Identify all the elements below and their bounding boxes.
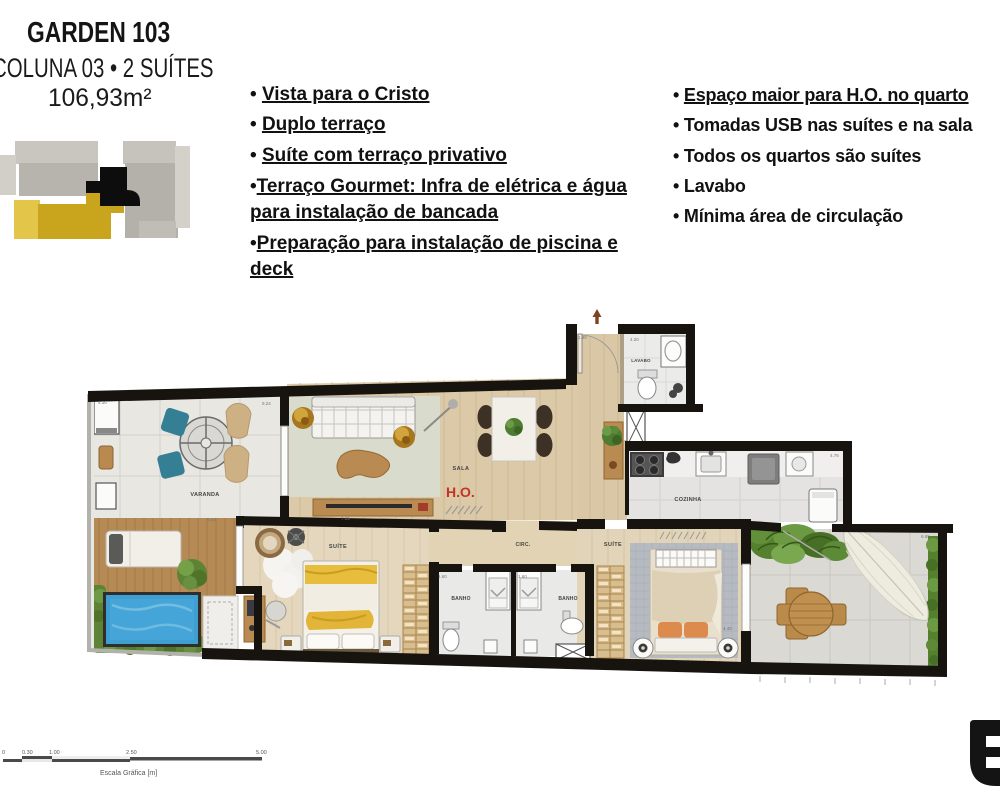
svg-text:5.00: 5.00 [256, 750, 267, 756]
svg-text:CIRC.: CIRC. [515, 542, 530, 548]
svg-text:2.50: 2.50 [126, 750, 137, 756]
svg-text:0: 0 [2, 750, 5, 756]
svg-text:9.24: 9.24 [262, 401, 271, 406]
svg-text:SUÍTE: SUÍTE [604, 540, 622, 548]
svg-text:BANHO: BANHO [451, 596, 470, 602]
svg-text:COZINHA: COZINHA [674, 497, 701, 503]
svg-text:0.30: 0.30 [22, 750, 33, 756]
svg-text:4.76: 4.76 [830, 453, 839, 458]
svg-text:1.60: 1.60 [438, 574, 447, 579]
svg-text:1.00: 1.00 [49, 750, 60, 756]
svg-text:4.40: 4.40 [723, 626, 732, 631]
svg-text:H.O.: H.O. [446, 484, 475, 500]
svg-text:SUÍTE: SUÍTE [329, 542, 347, 550]
svg-text:4.20: 4.20 [630, 337, 639, 342]
svg-text:VARANDA: VARANDA [190, 492, 219, 498]
svg-text:6.65: 6.65 [921, 534, 930, 539]
svg-text:1.60: 1.60 [518, 574, 527, 579]
svg-text:SALA: SALA [453, 466, 470, 472]
svg-text:LAVABO: LAVABO [631, 358, 651, 363]
svg-text:Escala Gráfica [m]: Escala Gráfica [m] [100, 770, 157, 777]
svg-text:4.36: 4.36 [98, 400, 107, 405]
svg-text:5.34: 5.34 [207, 517, 216, 522]
svg-text:1.90: 1.90 [578, 335, 587, 340]
svg-text:BANHO: BANHO [558, 596, 577, 602]
svg-text:7.05: 7.05 [341, 516, 350, 521]
